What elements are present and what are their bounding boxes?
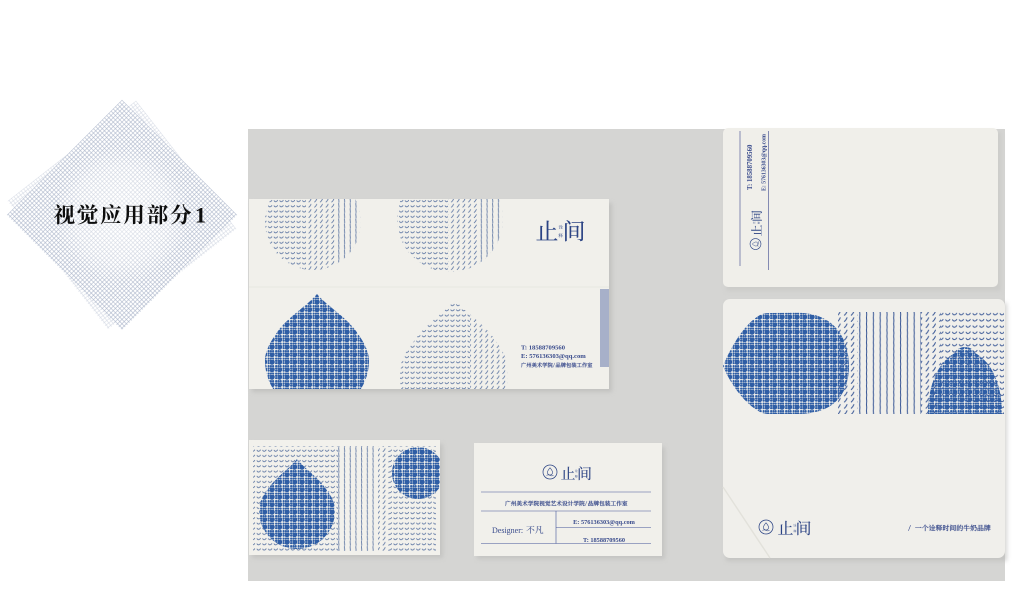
- svg-text:E: 576136303@qq.com: E: 576136303@qq.com: [762, 134, 768, 191]
- svg-text:Designer:: Designer:: [492, 526, 523, 535]
- svg-text:1: 1: [195, 203, 206, 228]
- svg-text:T: 18588709560: T: 18588709560: [583, 537, 625, 544]
- svg-text:T: 18588709560: T: 18588709560: [747, 144, 754, 190]
- svg-text:T: 18588709560: T: 18588709560: [521, 345, 566, 352]
- svg-text:E: 576136303@qq.com: E: 576136303@qq.com: [573, 519, 636, 526]
- svg-text:E: 576136303@qq.com: E: 576136303@qq.com: [521, 353, 586, 360]
